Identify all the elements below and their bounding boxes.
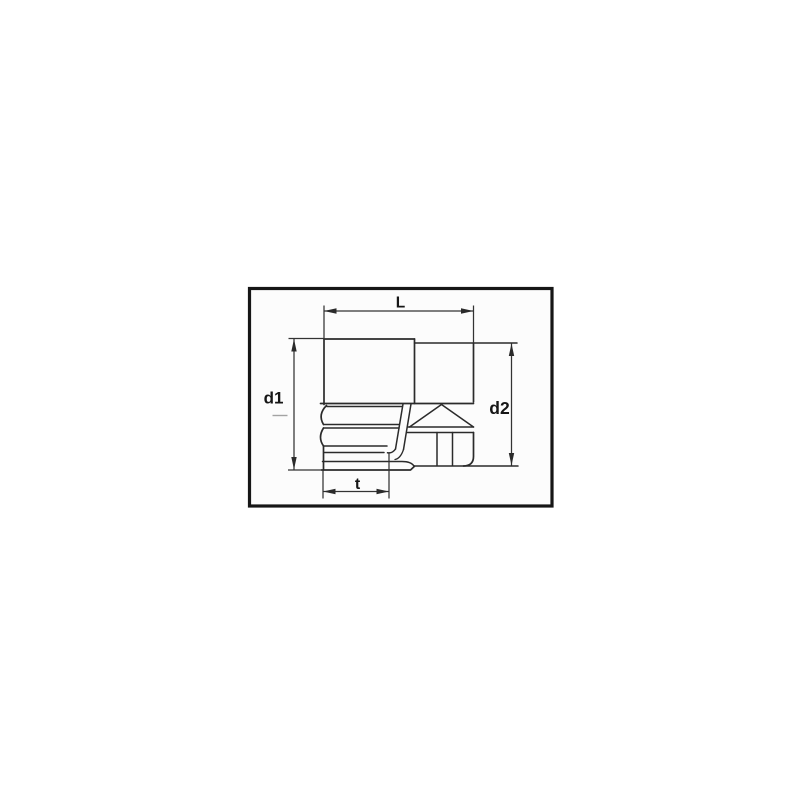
dimension-label-length: L: [396, 295, 405, 312]
dimension-label-d1: d1: [264, 389, 284, 408]
dimension-label-d2: d2: [489, 398, 510, 418]
page-background: L d1 d2 t: [0, 0, 800, 800]
dimension-label-depth: t: [355, 476, 361, 493]
technical-drawing: L d1 d2 t: [0, 0, 800, 800]
